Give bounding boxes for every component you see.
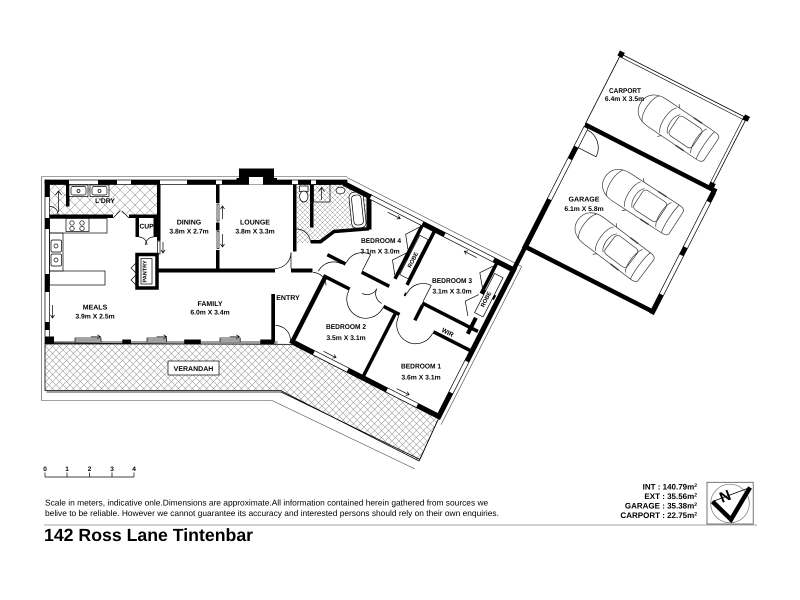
svg-text:3.1m X 3.0m: 3.1m X 3.0m	[432, 289, 471, 296]
svg-text:CARPORT: CARPORT	[609, 88, 642, 95]
svg-text:CUP: CUP	[139, 224, 154, 231]
svg-text:FAMILY: FAMILY	[197, 301, 222, 308]
svg-text:INT : 140.79m2: INT : 140.79m2	[643, 483, 698, 492]
svg-text:3: 3	[110, 466, 114, 473]
svg-text:3.8m X 3.3m: 3.8m X 3.3m	[235, 229, 274, 236]
svg-text:3.9m X 2.5m: 3.9m X 2.5m	[75, 314, 114, 321]
svg-text:CARPORT : 22.75m2: CARPORT : 22.75m2	[620, 511, 697, 520]
svg-text:L'DRY: L'DRY	[95, 198, 115, 205]
svg-text:3.6m X 3.1m: 3.6m X 3.1m	[401, 375, 440, 382]
svg-text:3.5m X 3.1m: 3.5m X 3.1m	[326, 335, 365, 342]
svg-text:1: 1	[65, 466, 69, 473]
svg-text:BEDROOM 2: BEDROOM 2	[326, 324, 366, 331]
svg-text:VERANDAH: VERANDAH	[174, 366, 214, 373]
svg-text:GARAGE : 35.38m2: GARAGE : 35.38m2	[625, 502, 697, 511]
svg-text:2: 2	[88, 466, 92, 473]
svg-text:BEDROOM 1: BEDROOM 1	[401, 364, 441, 371]
svg-text:BEDROOM 3: BEDROOM 3	[432, 278, 472, 285]
svg-text:0: 0	[43, 466, 47, 473]
svg-text:6.1m X 5.8m: 6.1m X 5.8m	[564, 206, 603, 213]
svg-text:6.0m X 3.4m: 6.0m X 3.4m	[190, 310, 229, 317]
svg-text:DINING: DINING	[177, 220, 202, 227]
svg-text:ENTRY: ENTRY	[276, 295, 300, 302]
svg-text:PANTRY: PANTRY	[143, 260, 149, 282]
svg-text:3.1m X 3.0m: 3.1m X 3.0m	[360, 249, 399, 256]
svg-text:EXT : 35.56m2: EXT : 35.56m2	[644, 492, 697, 501]
svg-text:6.4m X 3.5m: 6.4m X 3.5m	[605, 96, 644, 103]
svg-text:3.8m X 2.7m: 3.8m X 2.7m	[169, 229, 208, 236]
svg-text:LOUNGE: LOUNGE	[240, 220, 270, 227]
svg-text:MEALS: MEALS	[83, 305, 108, 312]
svg-text:4: 4	[132, 466, 136, 473]
svg-text:BEDROOM 4: BEDROOM 4	[361, 238, 401, 245]
svg-text:142 Ross Lane Tintenbar: 142 Ross Lane Tintenbar	[44, 525, 253, 545]
svg-text:Scale in meters, indicative on: Scale in meters, indicative onle.Dimensi…	[45, 498, 489, 508]
svg-text:belive to be reliable. However: belive to be reliable. However we cannot…	[45, 508, 499, 518]
svg-text:GARAGE: GARAGE	[569, 197, 600, 204]
